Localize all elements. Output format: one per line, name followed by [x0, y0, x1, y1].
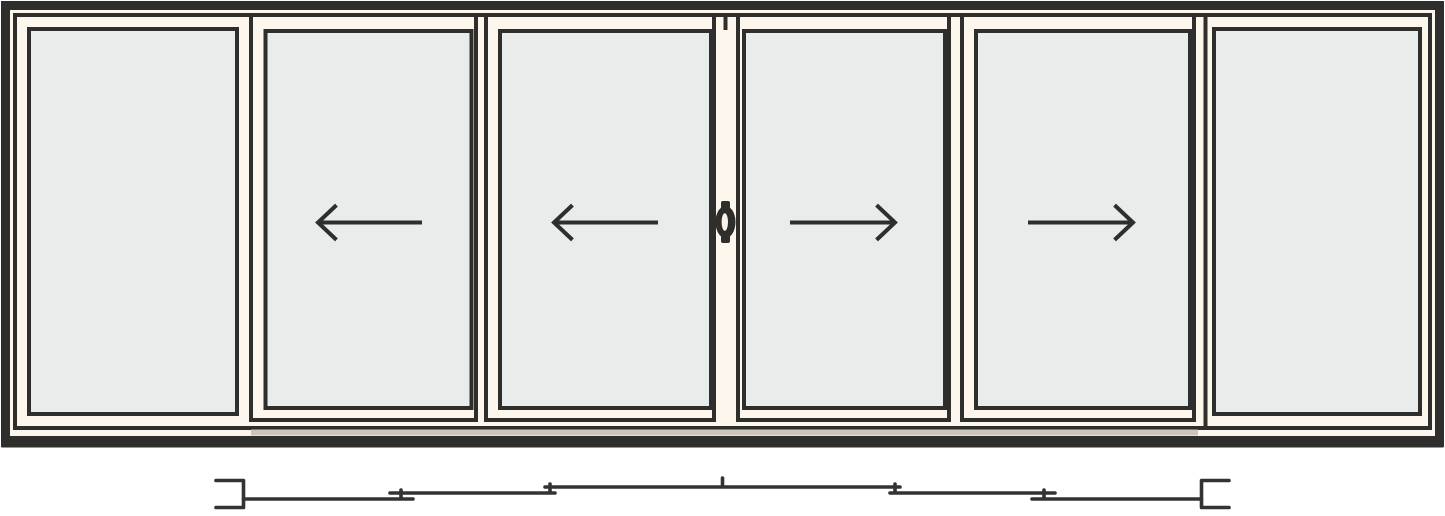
- sliding-track-strip: [251, 430, 1198, 436]
- panel-2-sliding: [251, 15, 476, 420]
- stacking-segments: [244, 478, 1202, 499]
- stacking-left-bracket: [216, 481, 244, 508]
- stacking-right-bracket: [1202, 481, 1230, 508]
- panel-1-fixed: [29, 29, 237, 414]
- door-elevation-svg: [0, 0, 1445, 516]
- glass-pane: [1214, 29, 1420, 414]
- glass-pane: [266, 31, 472, 408]
- panel-6-fixed: [1214, 29, 1420, 414]
- glass-pane: [500, 31, 711, 408]
- glass-pane: [976, 31, 1190, 408]
- panel-5-sliding: [962, 15, 1194, 420]
- panel-4-sliding: [738, 15, 949, 420]
- glass-pane: [29, 29, 237, 414]
- glass-pane: [744, 31, 945, 408]
- panel-3-sliding: [486, 15, 714, 420]
- track-stacking-diagram: [216, 478, 1229, 508]
- sliding-door-diagram: [0, 0, 1445, 516]
- door-sill-band: [2, 436, 1444, 448]
